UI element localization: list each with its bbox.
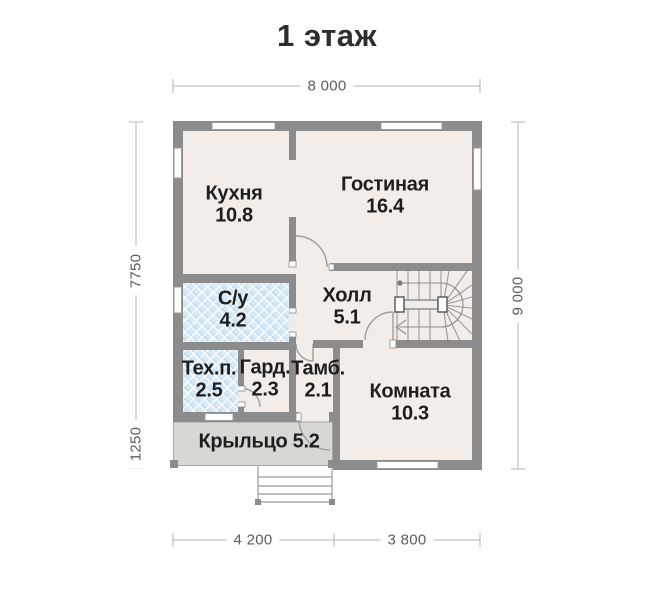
floor-plan-page: 1 этаж	[0, 0, 654, 600]
porch-posts	[170, 460, 336, 505]
window-bathroom-left	[174, 287, 182, 313]
window-living-right	[474, 148, 482, 190]
window-tech-bottom	[205, 414, 233, 421]
dimension-left-upper: 7750	[128, 247, 145, 296]
window-living-top	[381, 123, 442, 130]
window-kitchen-top	[212, 123, 275, 130]
window-kitchen-left	[174, 148, 182, 178]
stair-handrail	[404, 300, 438, 309]
entrance-steps	[258, 466, 332, 502]
room-label-hall: Холл5.1	[322, 285, 371, 330]
room-label-kitchen: Кухня10.8	[206, 183, 263, 228]
room-label-bedroom: Комната10.3	[370, 381, 451, 426]
window-bedroom-bottom	[377, 462, 438, 469]
dimension-bottom-left: 4 200	[226, 532, 279, 549]
stair-post-left	[395, 297, 404, 312]
room-label-tech: Тех.п.2.5	[182, 358, 237, 403]
stair-start-dot	[397, 280, 402, 285]
stair-post-right	[438, 297, 447, 312]
room-label-bathroom: С/у4.2	[218, 288, 248, 333]
dimension-left-lower: 1250	[128, 420, 145, 469]
dimension-bottom-right: 3 800	[380, 532, 433, 549]
room-label-living: Гостиная16.4	[341, 174, 429, 219]
room-label-porch: Крыльцо 5.2	[198, 431, 319, 454]
room-label-tambour: Тамб.2.1	[291, 358, 345, 403]
dimension-right: 9 000	[510, 269, 527, 322]
room-label-wardrobe: Гард.2.3	[240, 357, 291, 402]
dimension-top: 8 000	[300, 78, 353, 95]
